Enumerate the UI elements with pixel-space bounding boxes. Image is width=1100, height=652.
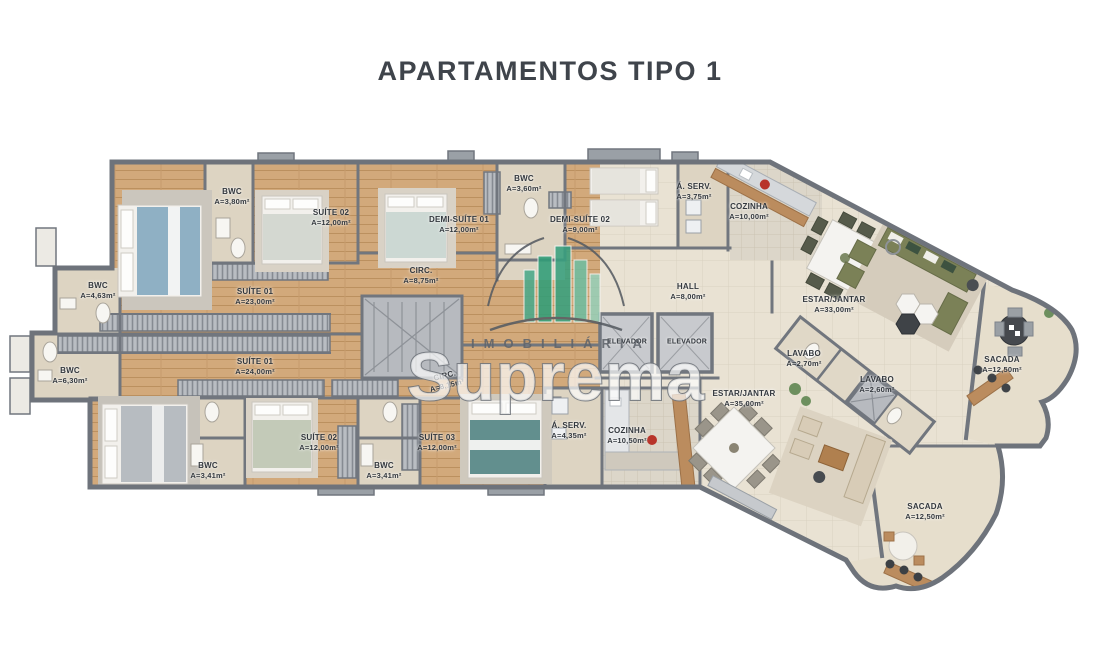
room-area: A=33,00m² [803, 305, 866, 315]
room-area: A=2,70m² [786, 359, 821, 369]
room-area: A=12,00m² [311, 218, 351, 228]
room-label-bwc-inferior: BWCA=3,41m² [190, 461, 225, 481]
room-label-su-te-01-inferior: SUÍTE 01A=24,00m² [235, 357, 275, 377]
room-area: A=3,41m² [366, 471, 401, 481]
room-name: BWC [506, 174, 541, 184]
room-area: A=3,80m² [214, 197, 249, 207]
room-label-sacada-inferior: SACADAA=12,50m² [905, 502, 945, 522]
room-label-estar-jantar-superior: ESTAR/JANTARA=33,00m² [803, 295, 866, 315]
room-area: A=3,75m² [676, 192, 711, 202]
room-name: SACADA [905, 502, 945, 512]
room-area: A=12,00m² [429, 225, 489, 235]
room-name: Á. SERV. [551, 421, 586, 431]
room-name: ELEVADOR [607, 337, 647, 346]
room-name: SUÍTE 02 [299, 433, 339, 443]
room-name: LAVABO [786, 349, 821, 359]
room-label-bwc-inferior: BWCA=6,30m² [52, 366, 87, 386]
room-label-lavabo-inferior: LAVABOA=2,60m² [859, 375, 894, 395]
room-name: COZINHA [607, 426, 647, 436]
room-label-su-te-02-inferior: SUÍTE 02A=12,00m² [299, 433, 339, 453]
room-label--serv--superior: Á. SERV.A=3,75m² [676, 182, 711, 202]
room-label-cozinha-superior: COZINHAA=10,00m² [729, 202, 769, 222]
room-name: BWC [366, 461, 401, 471]
room-area: A=3,60m² [506, 184, 541, 194]
room-area: A=12,50m² [982, 365, 1022, 375]
room-area: A=12,50m² [905, 512, 945, 522]
room-label-elevador-superior: ELEVADOR [607, 337, 647, 346]
room-name: ELEVADOR [667, 337, 707, 346]
room-name: Á. SERV. [676, 182, 711, 192]
room-name: LAVABO [859, 375, 894, 385]
room-name: ESTAR/JANTAR [803, 295, 866, 305]
room-area: A=2,60m² [859, 385, 894, 395]
room-area: A=23,00m² [235, 297, 275, 307]
room-label-bwc-inferior: BWCA=3,41m² [366, 461, 401, 481]
room-name: SUÍTE 01 [235, 357, 275, 367]
room-area: A=4,35m² [551, 431, 586, 441]
room-label-lavabo-superior: LAVABOA=2,70m² [786, 349, 821, 369]
room-label-bwc-inferior: BWCA=4,63m² [80, 281, 115, 301]
room-label-circ--superior: CIRC.A=8,75m² [403, 266, 438, 286]
room-name: SUÍTE 01 [235, 287, 275, 297]
room-label-demi-su-te-01-superior: DEMI-SUÍTE 01A=12,00m² [429, 215, 489, 235]
room-name: BWC [52, 366, 87, 376]
room-area: A=35,00m² [713, 399, 776, 409]
room-name: BWC [214, 187, 249, 197]
room-name: CIRC. [403, 266, 438, 276]
room-label-hall-superior: HALLA=8,00m² [670, 282, 705, 302]
room-label-bwc-superior: BWCA=3,60m² [506, 174, 541, 194]
room-label-su-te-01-superior: SUÍTE 01A=23,00m² [235, 287, 275, 307]
room-area: A=3,41m² [190, 471, 225, 481]
room-label-cozinha-inferior: COZINHAA=10,50m² [607, 426, 647, 446]
room-label-elevador-superior: ELEVADOR [667, 337, 707, 346]
room-area: A=8,75m² [403, 276, 438, 286]
room-label-sacada-superior: SACADAA=12,50m² [982, 355, 1022, 375]
room-name: HALL [670, 282, 705, 292]
room-name: BWC [190, 461, 225, 471]
floorplan-page: APARTAMENTOS TIPO 1 [0, 0, 1100, 652]
room-label-estar-jantar-inferior: ESTAR/JANTARA=35,00m² [713, 389, 776, 409]
room-label-demi-su-te-02-superior: DEMI-SUÍTE 02A=9,00m² [550, 215, 610, 235]
room-name: SUÍTE 03 [417, 433, 457, 443]
room-label-su-te-03-inferior: SUÍTE 03A=12,00m² [417, 433, 457, 453]
room-area: A=9,00m² [550, 225, 610, 235]
room-name: DEMI-SUÍTE 02 [550, 215, 610, 225]
room-area: A=12,00m² [417, 443, 457, 453]
room-name: SACADA [982, 355, 1022, 365]
room-area: A=10,50m² [607, 436, 647, 446]
room-area: A=12,00m² [299, 443, 339, 453]
room-area: A=4,63m² [80, 291, 115, 301]
room-name: SUÍTE 02 [311, 208, 351, 218]
room-label-circ--inferior: CIRC.A=8,15m² [427, 367, 466, 395]
room-name: ESTAR/JANTAR [713, 389, 776, 399]
room-label--serv--inferior: Á. SERV.A=4,35m² [551, 421, 586, 441]
room-area: A=10,00m² [729, 212, 769, 222]
room-area: A=6,30m² [52, 376, 87, 386]
room-labels: SUÍTE 01A=23,00m²BWCA=3,80m²SUÍTE 02A=12… [0, 0, 1100, 652]
room-label-su-te-02-superior: SUÍTE 02A=12,00m² [311, 208, 351, 228]
room-label-bwc-superior: BWCA=3,80m² [214, 187, 249, 207]
room-area: A=8,00m² [670, 292, 705, 302]
room-area: A=24,00m² [235, 367, 275, 377]
room-name: DEMI-SUÍTE 01 [429, 215, 489, 225]
room-name: COZINHA [729, 202, 769, 212]
room-name: BWC [80, 281, 115, 291]
